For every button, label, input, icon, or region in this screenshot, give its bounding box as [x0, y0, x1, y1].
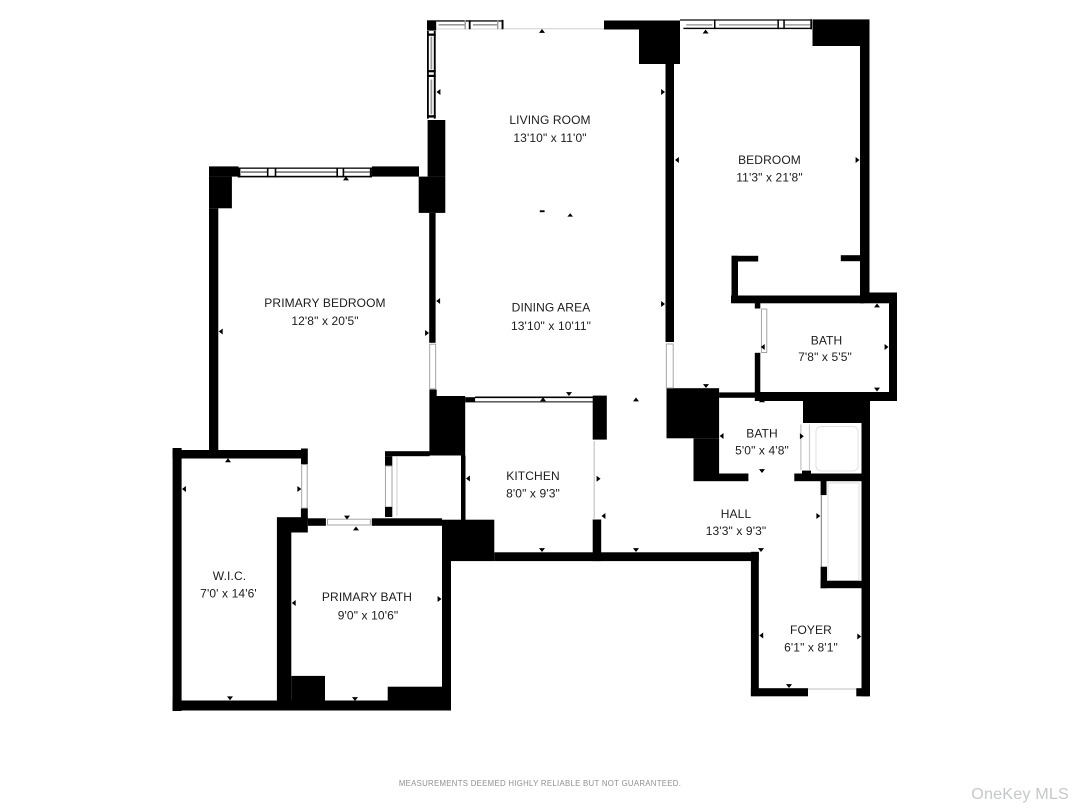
svg-text:HALL: HALL — [721, 507, 752, 521]
svg-text:BATH: BATH — [811, 334, 843, 348]
svg-text:5'0" x 4'8": 5'0" x 4'8" — [735, 444, 789, 458]
svg-text:MEASUREMENTS DEEMED HIGHLY REL: MEASUREMENTS DEEMED HIGHLY RELIABLE BUT … — [399, 779, 681, 788]
svg-text:BATH: BATH — [746, 427, 778, 441]
svg-text:6'1" x 8'1": 6'1" x 8'1" — [784, 641, 838, 655]
svg-text:11'3" x 21'8": 11'3" x 21'8" — [736, 171, 802, 185]
svg-text:13'10" x 10'11": 13'10" x 10'11" — [511, 319, 591, 333]
svg-text:7'8" x 5'5": 7'8" x 5'5" — [798, 350, 852, 364]
svg-text:OneKey MLS: OneKey MLS — [971, 785, 1069, 803]
svg-text:7'0' x 14'6': 7'0' x 14'6' — [200, 587, 257, 601]
svg-text:12'8" x 20'5": 12'8" x 20'5" — [291, 314, 358, 328]
svg-text:LIVING ROOM: LIVING ROOM — [509, 113, 590, 127]
svg-text:13'3" x 9'3": 13'3" x 9'3" — [706, 524, 767, 538]
svg-text:FOYER: FOYER — [790, 623, 832, 637]
svg-text:PRIMARY BEDROOM: PRIMARY BEDROOM — [264, 296, 385, 310]
svg-text:BEDROOM: BEDROOM — [738, 153, 801, 167]
svg-text:DINING AREA: DINING AREA — [512, 301, 591, 315]
svg-text:13'10" x 11'0": 13'10" x 11'0" — [513, 131, 586, 145]
svg-text:9'0" x 10'6": 9'0" x 10'6" — [338, 609, 399, 623]
svg-text:KITCHEN: KITCHEN — [506, 469, 560, 483]
svg-text:W.I.C.: W.I.C. — [213, 569, 246, 583]
svg-text:PRIMARY BATH: PRIMARY BATH — [322, 590, 412, 604]
svg-text:8'0" x 9'3": 8'0" x 9'3" — [506, 487, 560, 501]
